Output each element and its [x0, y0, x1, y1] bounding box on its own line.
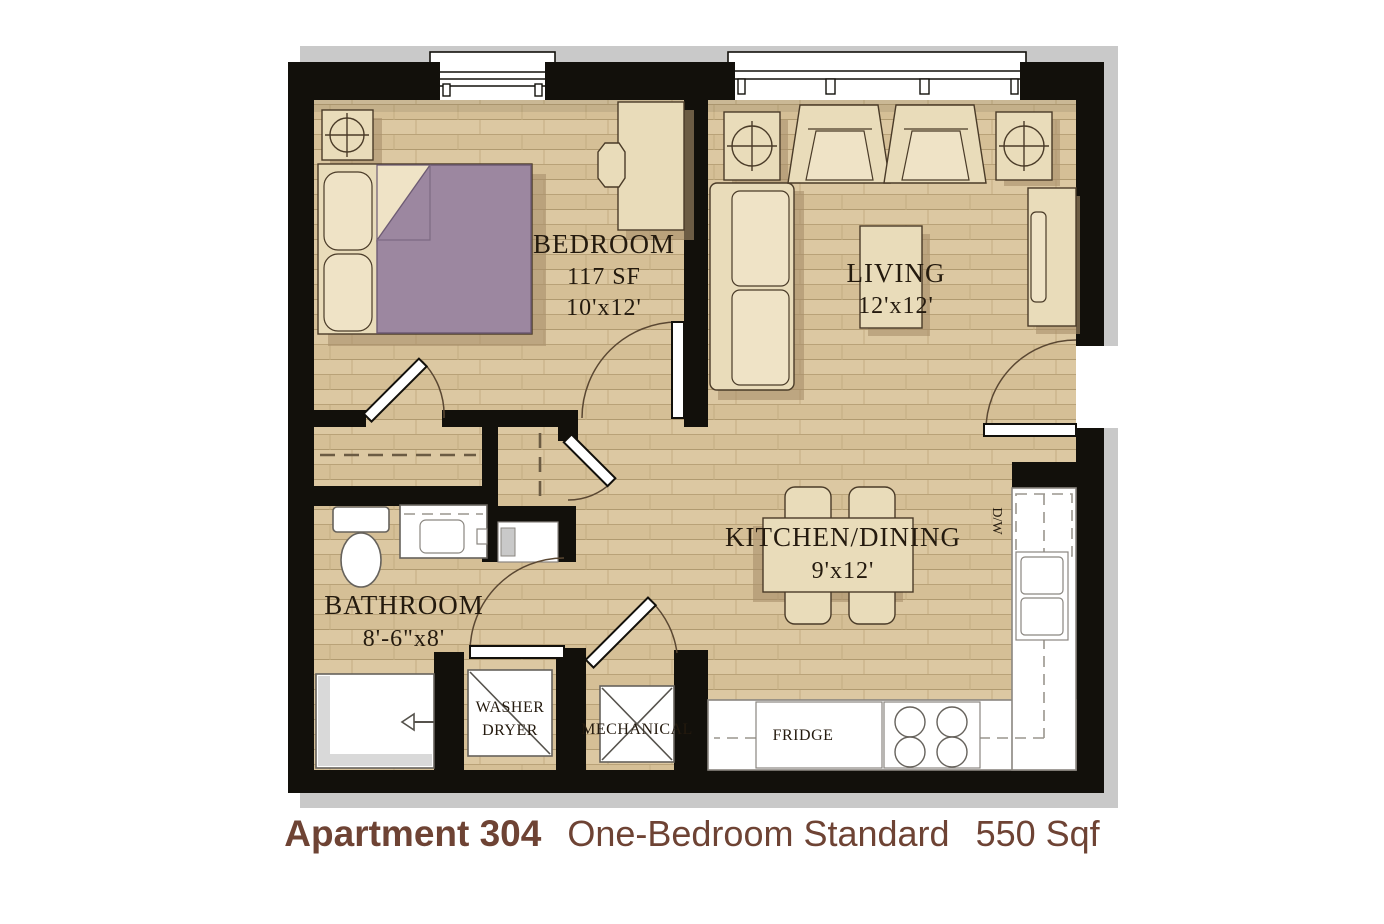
bedroom-area: 117 SF: [567, 264, 641, 290]
dishwasher-label: D/W: [989, 507, 1004, 535]
washer-label-line2: DRYER: [482, 722, 538, 739]
fridge-label: FRIDGE: [773, 727, 834, 744]
floorplan-canvas: BEDROOM 117 SF 10'x12' LIVING 12'x12' KI…: [0, 0, 1384, 924]
tv-console: [1028, 188, 1076, 326]
sink: [1016, 552, 1068, 640]
caption-area: 550 Sqf: [976, 813, 1101, 854]
bathroom-label: BATHROOM: [324, 590, 484, 620]
side-table-left: [724, 112, 780, 180]
caption-unit: Apartment 304: [284, 813, 541, 854]
caption-type: One-Bedroom Standard: [567, 813, 949, 854]
sofa: [710, 183, 794, 390]
bedroom-window: [440, 62, 545, 100]
floorplan-svg: BEDROOM 117 SF 10'x12' LIVING 12'x12' KI…: [0, 0, 1384, 924]
caption: Apartment 304 One-Bedroom Standard 550 S…: [284, 813, 1100, 854]
living-window: [735, 62, 1020, 100]
kitchen-dims: 9'x12': [812, 558, 875, 584]
bedroom-dims: 10'x12': [566, 295, 642, 321]
bed: [318, 164, 532, 334]
kitchen-label: KITCHEN/DINING: [725, 522, 961, 552]
accent-chair-right: [884, 105, 986, 183]
bedroom-nightstand: [322, 110, 373, 160]
accent-chair-left: [788, 105, 890, 183]
mechanical-label: MECHANICAL: [581, 721, 693, 738]
living-dims: 12'x12': [858, 293, 934, 319]
vanity: [400, 505, 487, 558]
desk-chair: [598, 143, 625, 187]
living-label: LIVING: [847, 258, 946, 288]
linen-niche: [498, 522, 558, 562]
side-table-right: [996, 112, 1052, 180]
bedroom-label: BEDROOM: [533, 229, 675, 259]
stove: [884, 702, 980, 768]
shower: [316, 674, 434, 768]
washer-label-line1: WASHER: [476, 699, 545, 716]
bathroom-dims: 8'-6"x8': [363, 626, 445, 652]
